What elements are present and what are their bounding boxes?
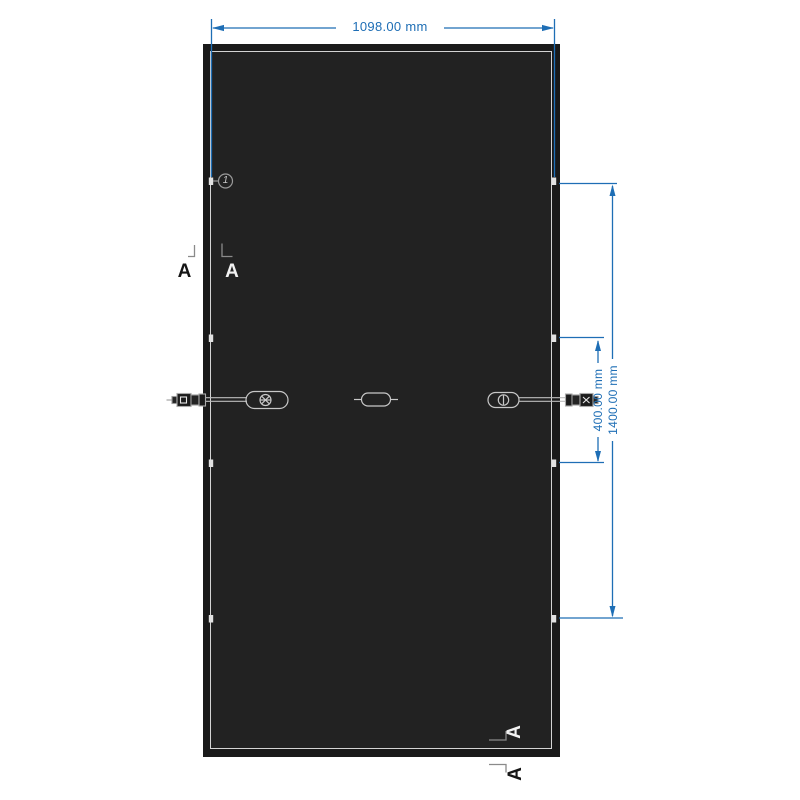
technical-drawing-canvas: 1098.00 mm 400.00 mm 1400.00 mm 1 A A A … (0, 0, 800, 800)
section-letter-top-outside: A (173, 260, 197, 284)
vertical-dimension-400-label: 400.00 mm (591, 340, 605, 460)
section-letter-bottom-inside: A (503, 720, 527, 744)
callout-1-number: 1 (219, 174, 232, 188)
middle-junction-box-icon (354, 393, 398, 406)
top-width-dimension (212, 19, 555, 177)
section-letter-bottom-outside: A (504, 762, 528, 786)
width-dimension-label: 1098.00 mm (330, 19, 450, 34)
right-cable (519, 398, 566, 402)
section-cut-brackets (188, 244, 506, 773)
left-cable (206, 398, 247, 402)
section-letter-top-inside: A (220, 260, 244, 284)
left-junction-box-icon (246, 392, 288, 409)
drawing-linework (0, 0, 800, 800)
right-junction-box-icon (488, 393, 519, 408)
vertical-dimension-1400-label: 1400.00 mm (606, 340, 620, 460)
left-mc4-connector-icon (167, 394, 206, 407)
